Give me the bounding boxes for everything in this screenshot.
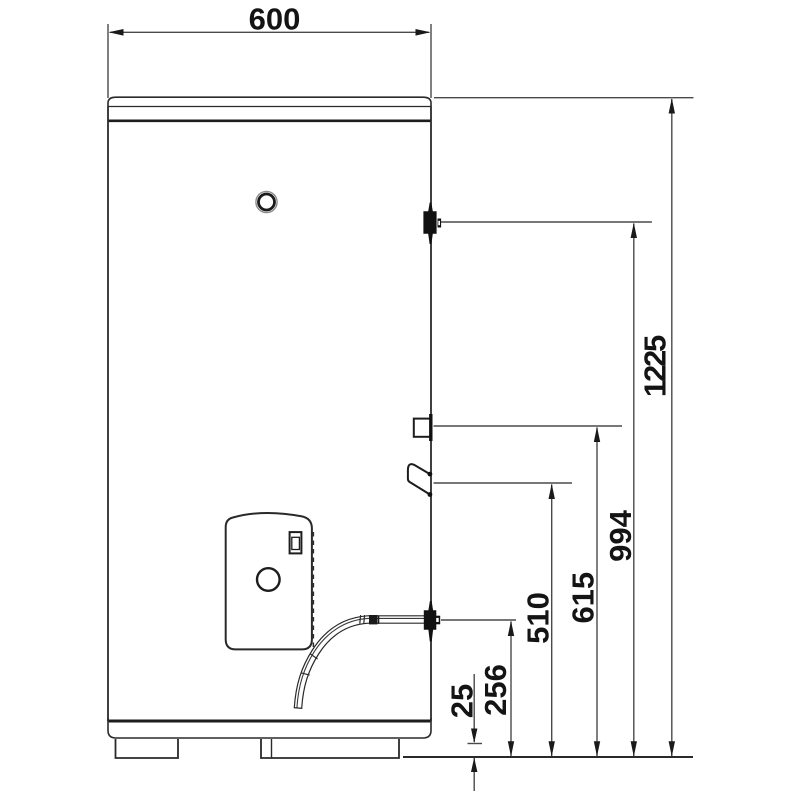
svg-text:25: 25 [444, 684, 479, 718]
svg-text:1225: 1225 [638, 335, 673, 397]
svg-text:256: 256 [478, 664, 513, 716]
svg-text:510: 510 [521, 592, 556, 644]
svg-text:615: 615 [566, 572, 601, 624]
svg-text:600: 600 [249, 1, 301, 36]
svg-text:994: 994 [603, 509, 638, 561]
